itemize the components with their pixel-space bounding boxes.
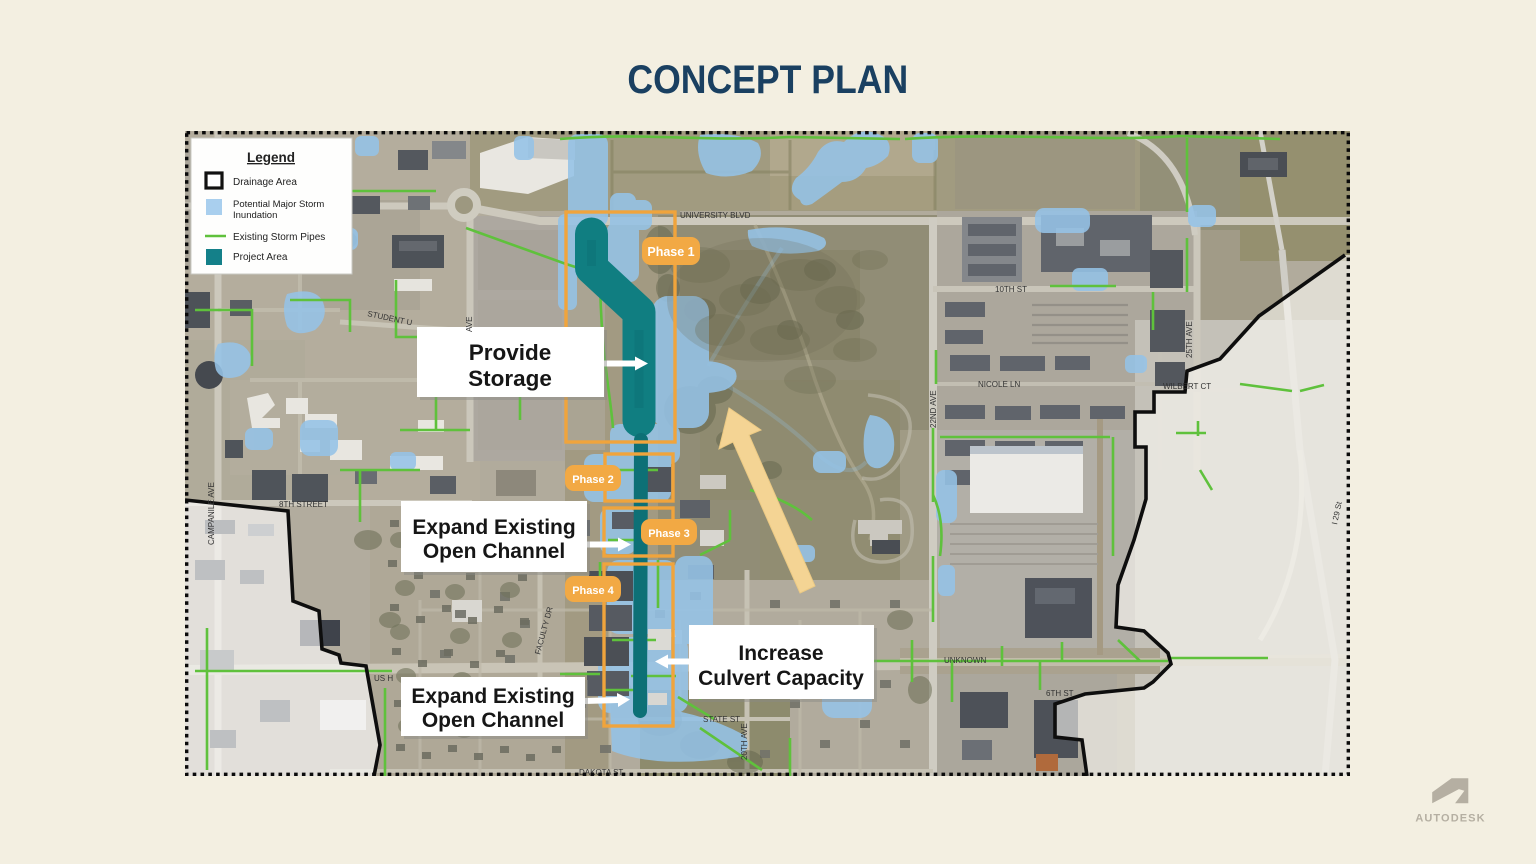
svg-text:STATE ST: STATE ST xyxy=(703,715,740,724)
svg-text:AVE: AVE xyxy=(465,317,474,332)
svg-text:Expand Existing: Expand Existing xyxy=(412,516,575,539)
svg-text:Storage: Storage xyxy=(468,366,552,391)
svg-text:Inundation: Inundation xyxy=(233,210,277,221)
svg-text:WILBERT CT: WILBERT CT xyxy=(1163,382,1211,391)
svg-text:Open Channel: Open Channel xyxy=(423,540,565,563)
svg-text:AUTODESK: AUTODESK xyxy=(1415,813,1485,825)
svg-text:US H: US H xyxy=(374,674,393,683)
svg-text:Existing Storm Pipes: Existing Storm Pipes xyxy=(233,232,325,243)
svg-text:Drainage Area: Drainage Area xyxy=(233,177,297,188)
svg-text:UNKNOWN: UNKNOWN xyxy=(944,656,986,665)
svg-text:6TH ST: 6TH ST xyxy=(1046,689,1074,698)
svg-text:20TH AVE: 20TH AVE xyxy=(740,723,749,760)
svg-text:NICOLE LN: NICOLE LN xyxy=(978,380,1020,389)
svg-text:Provide: Provide xyxy=(469,340,552,365)
svg-text:Phase 2: Phase 2 xyxy=(572,474,614,486)
svg-text:Expand Existing: Expand Existing xyxy=(411,685,574,708)
svg-text:Increase: Increase xyxy=(738,642,823,665)
svg-text:Potential Major Storm: Potential Major Storm xyxy=(233,199,324,210)
svg-text:8TH STREET: 8TH STREET xyxy=(279,500,328,509)
svg-text:Legend: Legend xyxy=(247,150,295,165)
svg-text:25TH AVE: 25TH AVE xyxy=(1185,321,1194,358)
svg-text:Project Area: Project Area xyxy=(233,252,288,263)
svg-text:Phase 3: Phase 3 xyxy=(648,528,690,540)
svg-text:Culvert Capacity: Culvert Capacity xyxy=(698,667,864,690)
svg-text:Phase 4: Phase 4 xyxy=(572,585,614,597)
svg-text:10TH ST: 10TH ST xyxy=(995,285,1027,294)
svg-text:UNIVERSITY BLVD: UNIVERSITY BLVD xyxy=(680,211,751,220)
svg-text:CAMPANILE AVE: CAMPANILE AVE xyxy=(207,482,216,545)
svg-text:22ND AVE: 22ND AVE xyxy=(929,390,938,428)
svg-text:Phase 1: Phase 1 xyxy=(647,245,694,259)
svg-text:Open Channel: Open Channel xyxy=(422,709,564,732)
